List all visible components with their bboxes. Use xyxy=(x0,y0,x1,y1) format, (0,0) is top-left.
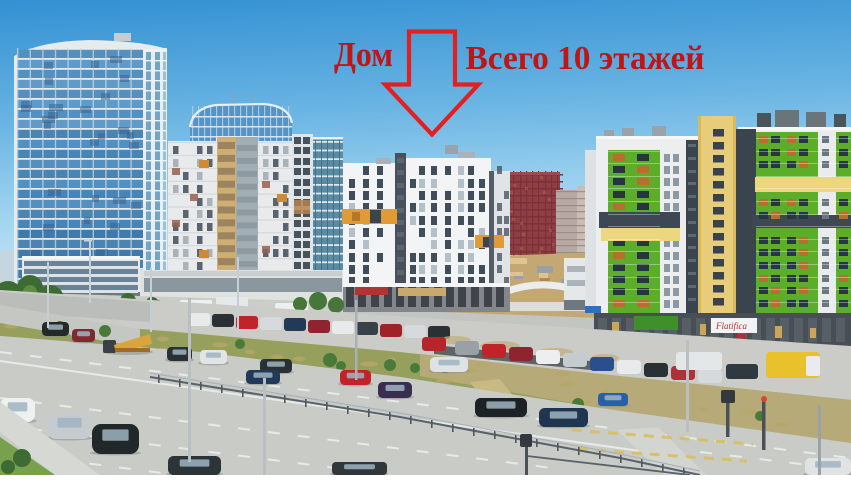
svg-text:Дом: Дом xyxy=(334,35,393,74)
svg-text:Flatifica: Flatifica xyxy=(715,321,747,331)
svg-text:Всего 10 этажей: Всего 10 этажей xyxy=(466,40,705,77)
